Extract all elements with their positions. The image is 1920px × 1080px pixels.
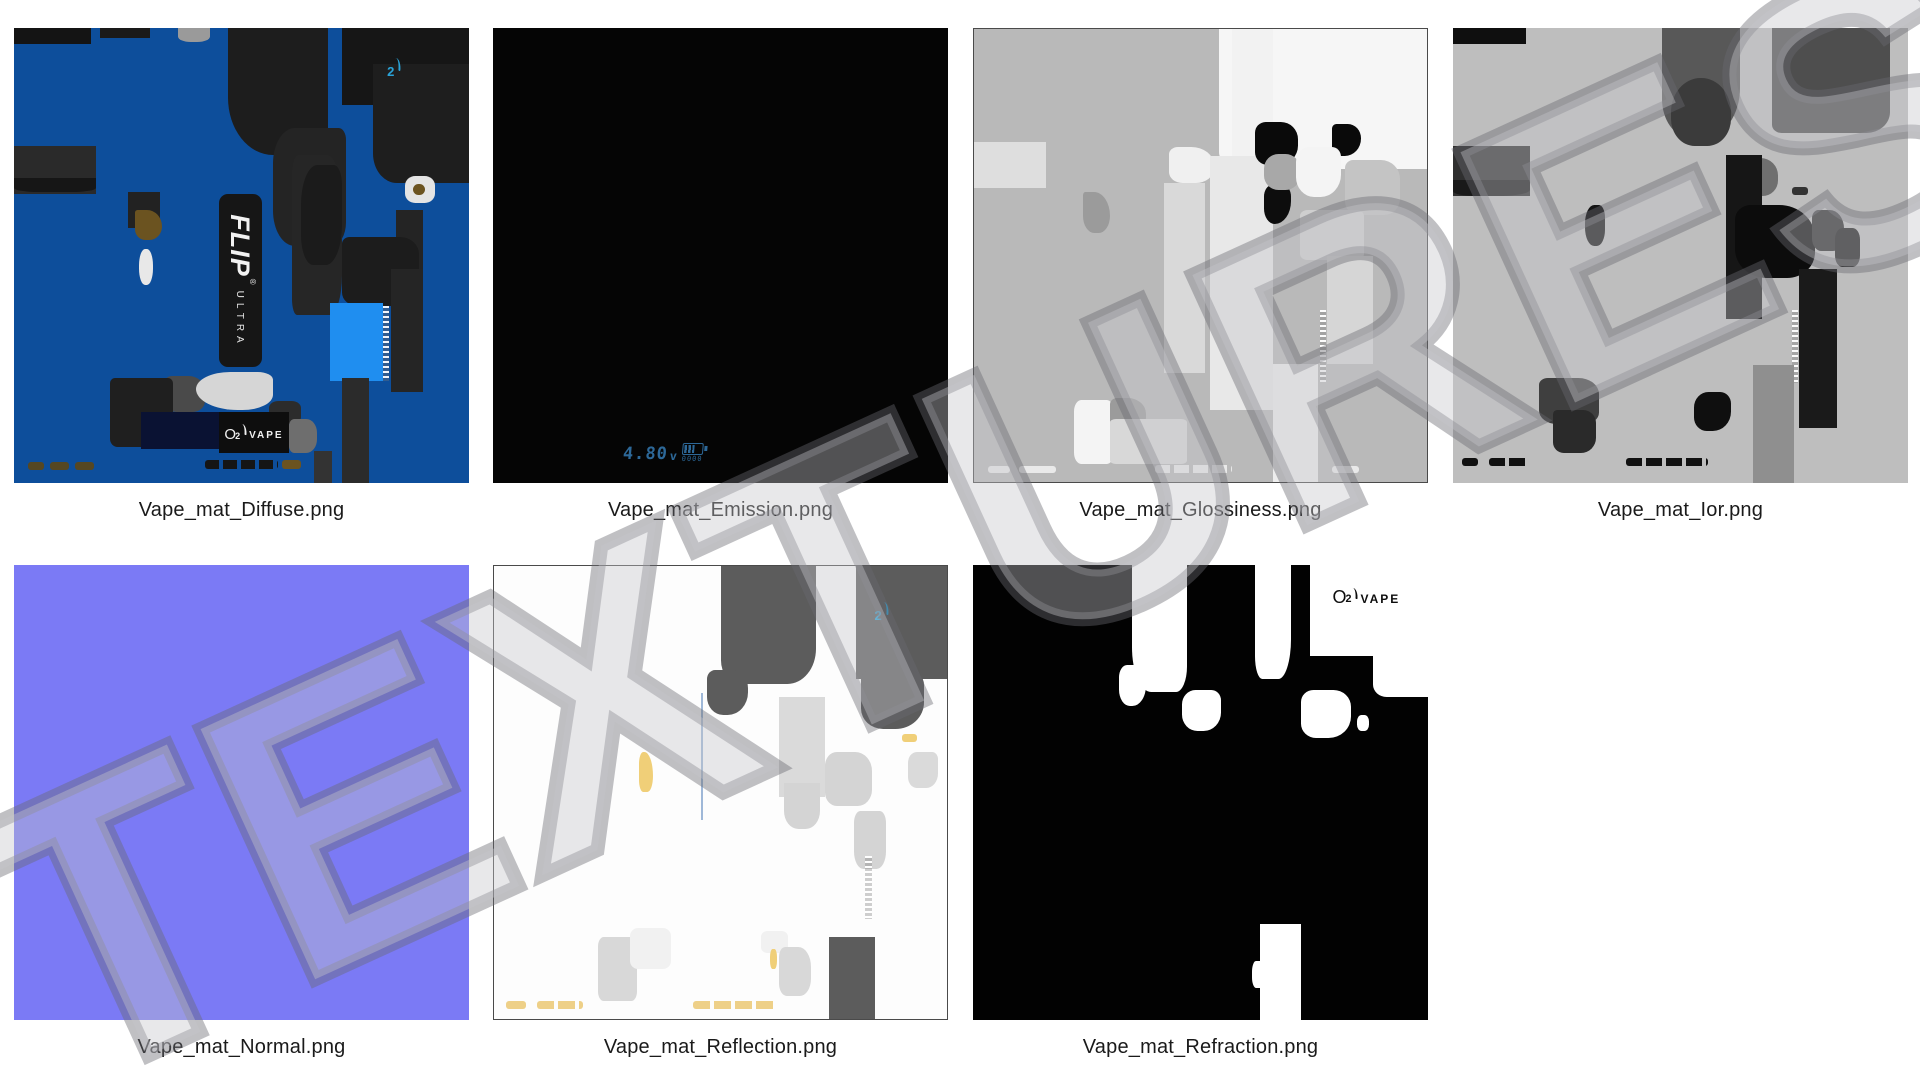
blob bbox=[373, 64, 469, 182]
blob bbox=[301, 165, 342, 265]
blob bbox=[1671, 78, 1730, 146]
blob bbox=[205, 460, 278, 469]
flip-ultra-logo: FLIP®ULTRA bbox=[219, 194, 262, 367]
file-label: Vape_mat_Emission.png bbox=[493, 499, 948, 522]
blob bbox=[1462, 458, 1478, 466]
blob bbox=[1320, 310, 1326, 382]
blob bbox=[383, 306, 388, 381]
file-label: Vape_mat_Ior.png bbox=[1453, 499, 1908, 522]
blob bbox=[1799, 269, 1838, 428]
blob bbox=[1735, 205, 1815, 278]
voltage-display: 4.80v 0000 bbox=[622, 443, 704, 463]
texture-preview-page: 2 O2VAPE bbox=[0, 0, 1920, 1080]
blob bbox=[856, 566, 947, 679]
blob bbox=[1310, 565, 1428, 656]
blob bbox=[196, 372, 273, 411]
blob bbox=[1489, 458, 1528, 466]
blob bbox=[1753, 365, 1794, 483]
blob bbox=[1626, 458, 1708, 466]
blob bbox=[1019, 466, 1055, 473]
blob bbox=[1585, 205, 1605, 246]
blob bbox=[1300, 210, 1363, 260]
file-label: Vape_mat_Normal.png bbox=[14, 1036, 469, 1059]
blob bbox=[1255, 565, 1291, 679]
blob bbox=[1327, 256, 1372, 365]
blob bbox=[537, 1001, 582, 1009]
ior-thumbnail bbox=[1453, 28, 1908, 483]
blob bbox=[1273, 364, 1318, 482]
file-label: Vape_mat_Diffuse.png bbox=[14, 499, 469, 522]
blob bbox=[1694, 392, 1730, 431]
blob bbox=[770, 949, 776, 969]
blob bbox=[391, 269, 423, 392]
blob bbox=[14, 28, 91, 44]
blob bbox=[902, 734, 917, 742]
texture-tile-ior[interactable]: Vape_mat_Ior.png bbox=[1453, 28, 1908, 522]
blob bbox=[289, 419, 316, 453]
blob bbox=[1453, 28, 1526, 44]
blob bbox=[861, 670, 924, 729]
file-label: Vape_mat_Glossiness.png bbox=[973, 499, 1428, 522]
vapor-digit-icon: 2 bbox=[875, 602, 889, 623]
battery-icon bbox=[682, 443, 704, 455]
blob bbox=[1260, 924, 1301, 1020]
blob bbox=[1301, 690, 1351, 738]
blob bbox=[1083, 192, 1110, 233]
blob bbox=[1553, 410, 1596, 453]
blob bbox=[829, 937, 874, 1019]
blob bbox=[1169, 147, 1214, 183]
blob bbox=[135, 210, 162, 240]
blob bbox=[1264, 185, 1291, 224]
blob bbox=[693, 1001, 777, 1009]
o2vape-logo: O2VAPE bbox=[219, 412, 290, 453]
blob bbox=[865, 856, 872, 919]
blob bbox=[342, 378, 369, 483]
blob bbox=[14, 178, 96, 192]
vapor-icon bbox=[882, 602, 889, 616]
texture-tile-diffuse[interactable]: 2 O2VAPE bbox=[14, 28, 469, 522]
blob bbox=[779, 947, 811, 997]
blob bbox=[974, 142, 1046, 187]
blob bbox=[282, 460, 300, 469]
blob bbox=[908, 752, 937, 788]
vapor-icon bbox=[395, 57, 402, 71]
texture-tile-normal[interactable]: Vape_mat_Normal.png bbox=[14, 565, 469, 1059]
normal-thumbnail bbox=[14, 565, 469, 1020]
vapor-digit-icon: 2 bbox=[387, 58, 401, 79]
blob bbox=[825, 752, 873, 806]
blob bbox=[1835, 228, 1860, 267]
blob bbox=[141, 412, 218, 448]
blob bbox=[1296, 147, 1341, 197]
blob bbox=[1155, 465, 1232, 473]
blob bbox=[1182, 690, 1221, 731]
blob bbox=[139, 249, 153, 285]
blob bbox=[1772, 28, 1890, 133]
texture-tile-reflection[interactable]: 2 Vape_mat_Reflection.png bbox=[493, 565, 948, 1059]
blob bbox=[1357, 715, 1368, 731]
blob bbox=[1264, 154, 1300, 190]
blob bbox=[1332, 466, 1359, 473]
blob bbox=[506, 1001, 526, 1009]
o2vape-logo: O2VAPE bbox=[1332, 588, 1400, 607]
blob bbox=[28, 462, 44, 470]
blob bbox=[779, 697, 824, 797]
blob bbox=[1453, 180, 1530, 196]
refraction-thumbnail: O2VAPE bbox=[973, 565, 1428, 1020]
glossiness-thumbnail bbox=[973, 28, 1428, 483]
emission-thumbnail: 4.80v 0000 bbox=[493, 28, 948, 483]
texture-tile-refraction[interactable]: O2VAPE Vape_mat_Refraction.png bbox=[973, 565, 1428, 1059]
blob bbox=[75, 462, 93, 470]
blob bbox=[1792, 187, 1808, 194]
reflection-thumbnail: 2 bbox=[493, 565, 948, 1020]
vapor-icon bbox=[1352, 587, 1359, 599]
diffuse-thumbnail: 2 O2VAPE bbox=[14, 28, 469, 483]
blob bbox=[1252, 961, 1262, 988]
blob bbox=[988, 466, 1011, 473]
blob bbox=[1164, 183, 1205, 373]
blob bbox=[1345, 160, 1399, 214]
vapor-icon bbox=[241, 424, 248, 436]
texture-tile-emission[interactable]: 4.80v 0000 Vape_mat_Emission.png bbox=[493, 28, 948, 522]
blob bbox=[639, 752, 653, 793]
blob bbox=[630, 928, 671, 969]
blob bbox=[784, 783, 820, 828]
blob bbox=[1119, 665, 1146, 706]
blob bbox=[330, 303, 382, 380]
blob bbox=[707, 670, 748, 715]
blob bbox=[50, 462, 68, 470]
blob bbox=[178, 28, 210, 42]
blob bbox=[1110, 419, 1187, 464]
file-label: Vape_mat_Reflection.png bbox=[493, 1036, 948, 1059]
blob bbox=[1373, 647, 1428, 697]
blob bbox=[701, 693, 703, 820]
file-label: Vape_mat_Refraction.png bbox=[973, 1036, 1428, 1059]
blob bbox=[100, 28, 150, 38]
blob bbox=[721, 566, 816, 684]
blob bbox=[1074, 400, 1115, 463]
blob bbox=[314, 451, 332, 483]
texture-tile-glossiness[interactable]: Vape_mat_Glossiness.png bbox=[973, 28, 1428, 522]
